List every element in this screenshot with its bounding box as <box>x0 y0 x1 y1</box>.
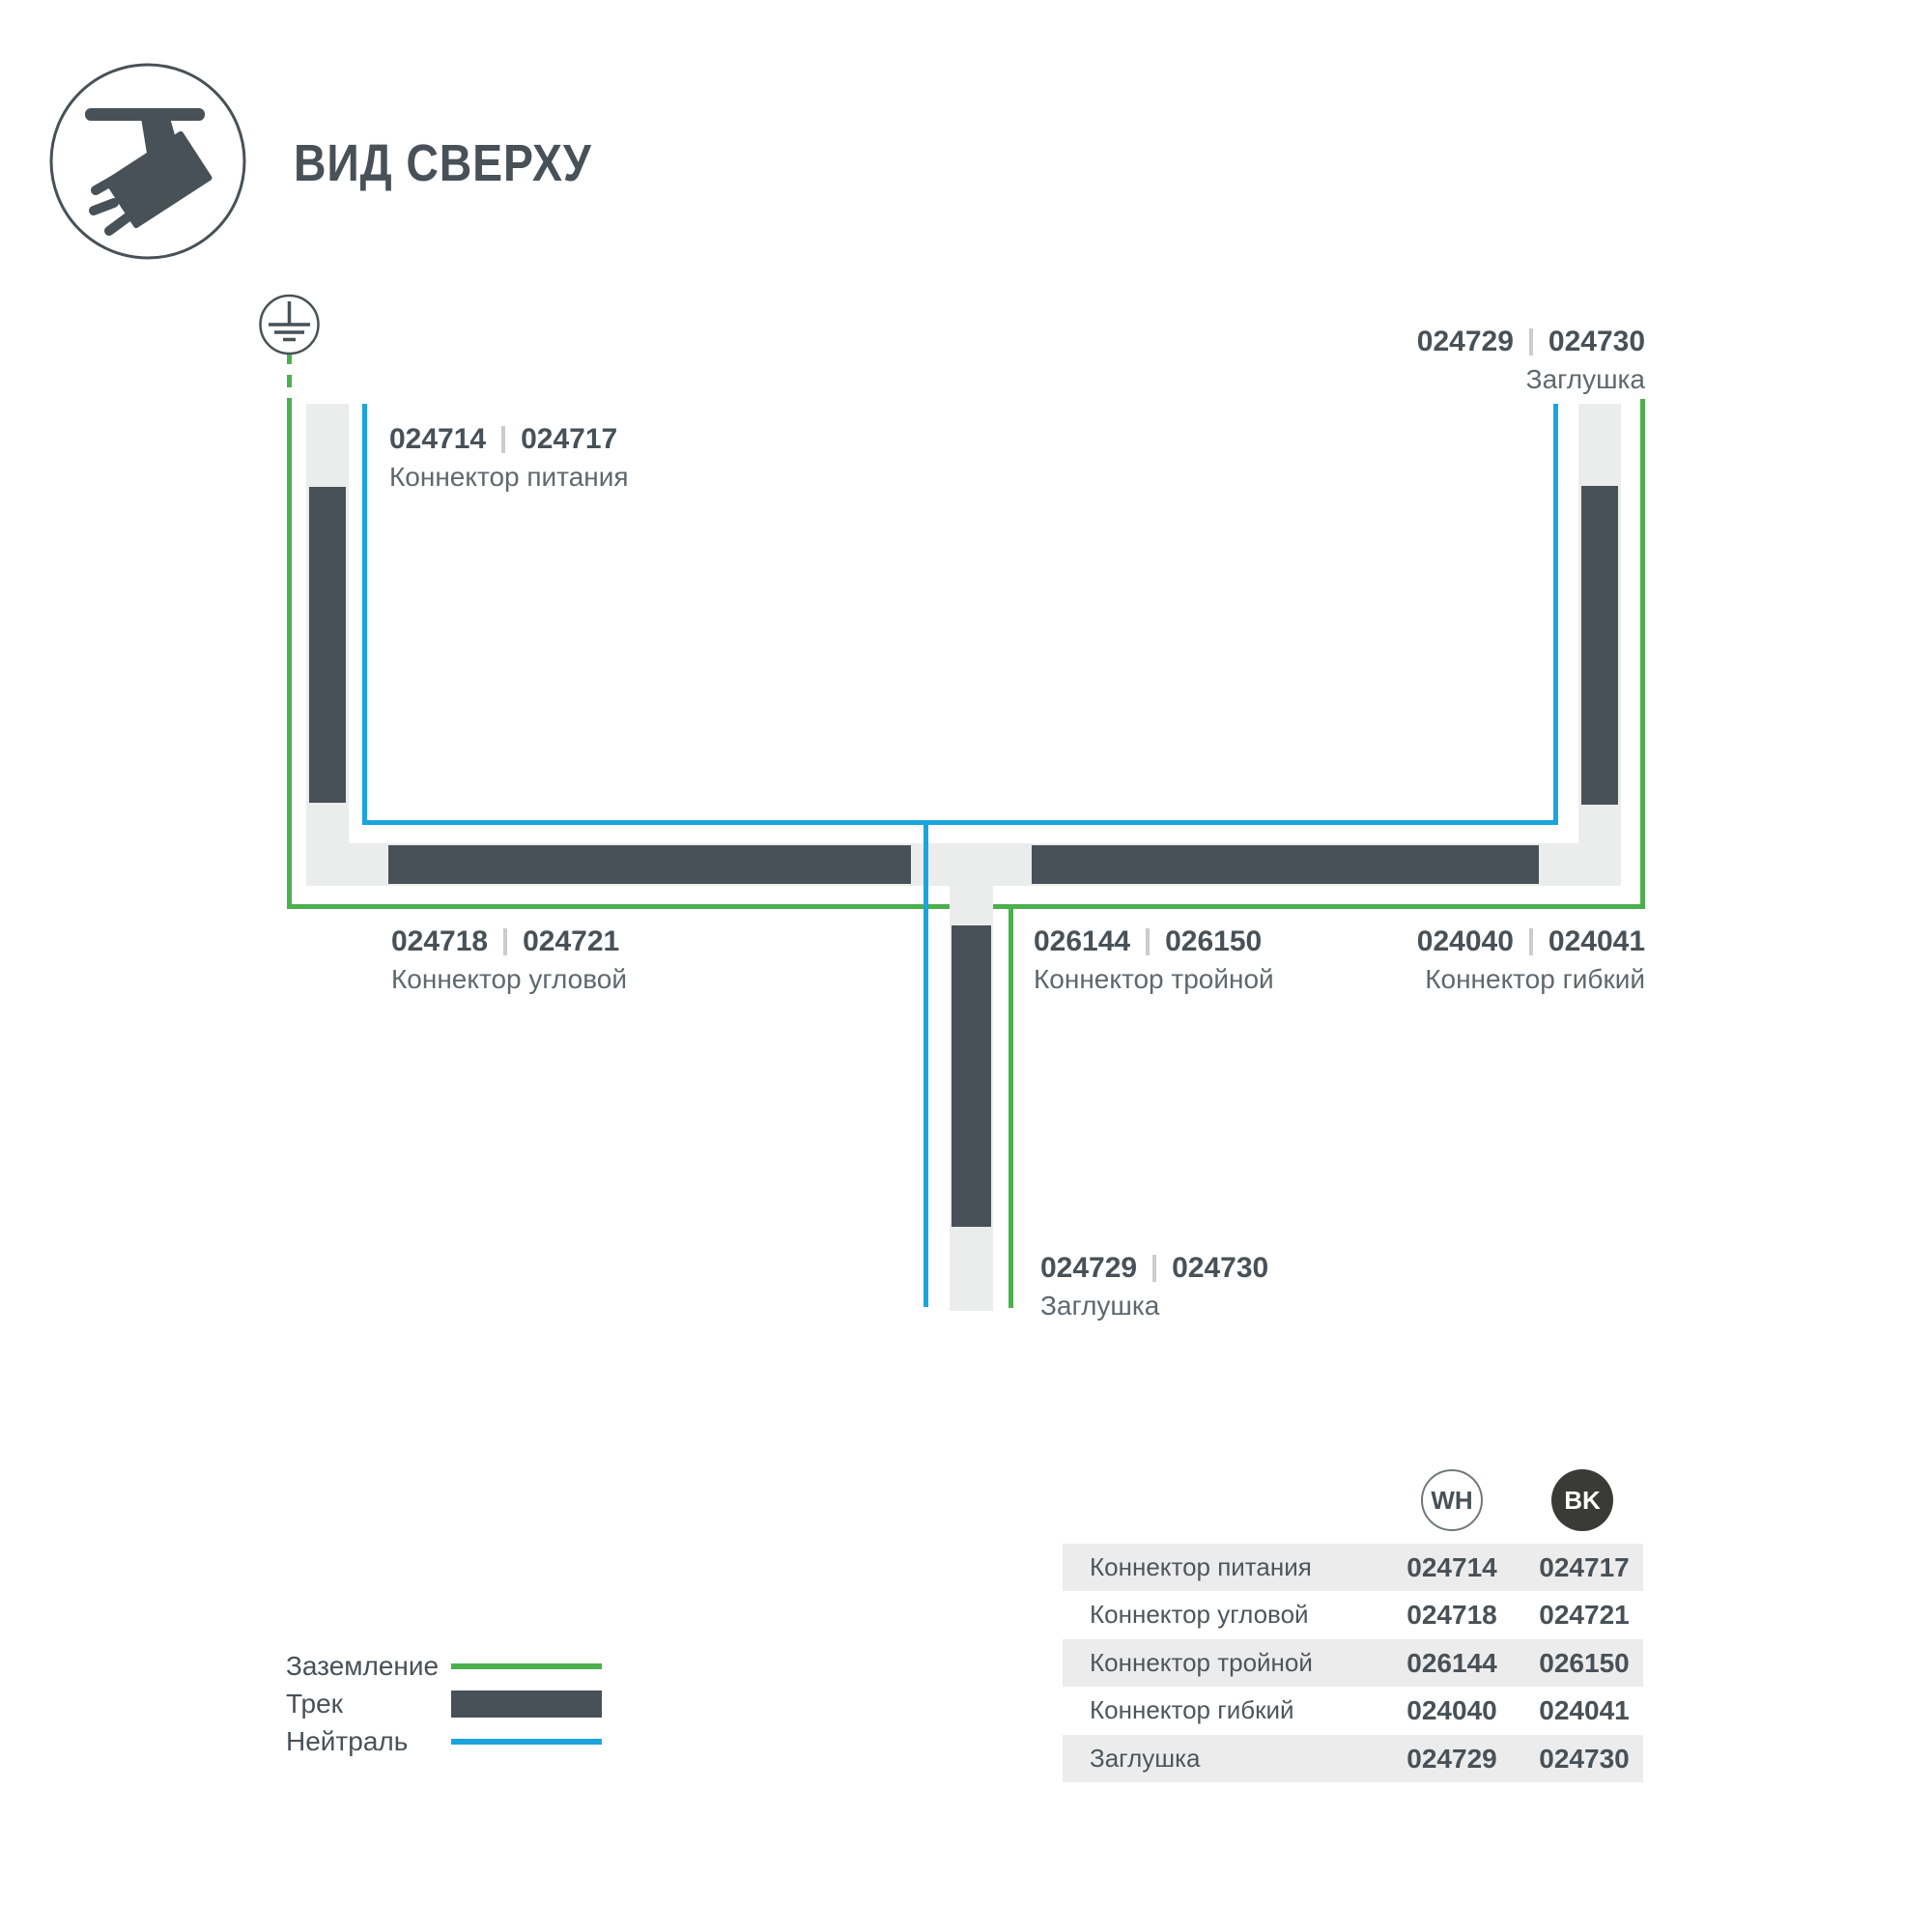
code-wh: 024729 <box>1040 1251 1137 1286</box>
row-code-wh: 026144 <box>1394 1639 1510 1687</box>
ground-symbol-icon <box>256 290 324 359</box>
code-wh: 024714 <box>389 422 486 457</box>
row-code-bk: 026150 <box>1526 1639 1642 1687</box>
column-header-white-label: WH <box>1431 1486 1472 1516</box>
row-code-wh: 024714 <box>1394 1544 1510 1591</box>
legend-ground-label: Заземление <box>286 1651 439 1682</box>
track-spotlight-icon <box>48 62 247 261</box>
column-header-black: BK <box>1551 1469 1613 1531</box>
neutral-line-left <box>362 404 367 825</box>
track-segment-branch <box>952 925 991 1227</box>
track-segment-bottom-right <box>1032 845 1539 884</box>
code-bk: 024730 <box>1172 1251 1268 1286</box>
legend-neutral-label: Нейтраль <box>286 1726 408 1757</box>
ground-line-branch <box>1009 904 1013 1308</box>
code-bk: 024041 <box>1548 924 1645 959</box>
label-flexible-connector: 024040 024041 Коннектор гибкий <box>1417 924 1645 996</box>
table-row: Коннектор питания 024714 024717 <box>1063 1544 1643 1591</box>
label-corner-connector: 024718 024721 Коннектор угловой <box>391 924 627 996</box>
code-separator <box>1146 928 1150 955</box>
code-wh: 024718 <box>391 924 488 959</box>
row-code-wh: 024729 <box>1394 1735 1510 1782</box>
row-code-bk: 024041 <box>1526 1687 1642 1734</box>
row-part-name: Коннектор угловой <box>1090 1591 1309 1638</box>
neutral-line-middle <box>362 820 1558 825</box>
column-header-black-label: BK <box>1564 1486 1601 1516</box>
part-name: Коннектор гибкий <box>1417 963 1645 996</box>
legend-track-label: Трек <box>286 1689 343 1719</box>
code-bk: 026150 <box>1165 924 1262 959</box>
row-code-bk: 024721 <box>1526 1591 1642 1638</box>
legend-neutral-swatch <box>451 1739 602 1745</box>
row-part-name: Коннектор тройной <box>1090 1639 1313 1687</box>
page-title: ВИД СВЕРХУ <box>294 131 592 195</box>
part-name: Заглушка <box>1040 1290 1268 1322</box>
neutral-line-branch <box>923 820 928 1307</box>
column-header-white: WH <box>1421 1469 1483 1531</box>
table-row: Коннектор гибкий 024040 024041 <box>1063 1687 1643 1734</box>
legend-ground-swatch <box>451 1663 602 1669</box>
ground-line-left <box>287 399 292 909</box>
code-bk: 024721 <box>523 924 619 959</box>
part-name: Коннектор тройной <box>1034 963 1274 996</box>
row-code-bk: 024717 <box>1526 1544 1642 1591</box>
label-power-connector: 024714 024717 Коннектор питания <box>389 422 629 494</box>
code-separator <box>503 928 507 955</box>
top-view-diagram-page: ВИД СВЕРХУ 024714 024717 Коннектор питан… <box>0 0 1932 1932</box>
ground-line-right <box>1640 399 1645 909</box>
track-segment-bottom-left <box>388 845 911 884</box>
table-row: Коннектор угловой 024718 024721 <box>1063 1591 1643 1638</box>
label-triple-connector: 026144 026150 Коннектор тройной <box>1034 924 1274 996</box>
code-separator <box>1529 928 1533 955</box>
neutral-line-right <box>1553 404 1558 825</box>
code-bk: 024730 <box>1548 325 1645 359</box>
code-wh: 024040 <box>1417 924 1514 959</box>
table-row: Заглушка 024729 024730 <box>1063 1735 1643 1782</box>
row-part-name: Заглушка <box>1090 1735 1201 1782</box>
label-end-cap-top: 024729 024730 Заглушка <box>1417 325 1645 396</box>
row-part-name: Коннектор гибкий <box>1090 1687 1294 1734</box>
code-bk: 024717 <box>521 422 617 457</box>
code-wh: 026144 <box>1034 924 1130 959</box>
code-wh: 024729 <box>1417 325 1514 359</box>
code-separator <box>1152 1255 1156 1282</box>
track-segment-left <box>309 487 346 803</box>
part-name: Заглушка <box>1417 363 1645 396</box>
table-row: Коннектор тройной 026144 026150 <box>1063 1639 1643 1687</box>
row-part-name: Коннектор питания <box>1090 1544 1312 1591</box>
row-code-bk: 024730 <box>1526 1735 1642 1782</box>
code-separator <box>501 426 505 453</box>
track-segment-right <box>1581 486 1618 805</box>
legend-item-track: Трек <box>286 1685 602 1722</box>
part-name: Коннектор угловой <box>391 963 627 996</box>
label-end-cap-bottom: 024729 024730 Заглушка <box>1040 1251 1268 1322</box>
legend-item-ground: Заземление <box>286 1647 602 1685</box>
legend-track-swatch <box>451 1690 602 1718</box>
code-separator <box>1529 328 1533 355</box>
part-name: Коннектор питания <box>389 461 629 494</box>
row-code-wh: 024718 <box>1394 1591 1510 1638</box>
legend-item-neutral: Нейтраль <box>286 1722 602 1760</box>
row-code-wh: 024040 <box>1394 1687 1510 1734</box>
